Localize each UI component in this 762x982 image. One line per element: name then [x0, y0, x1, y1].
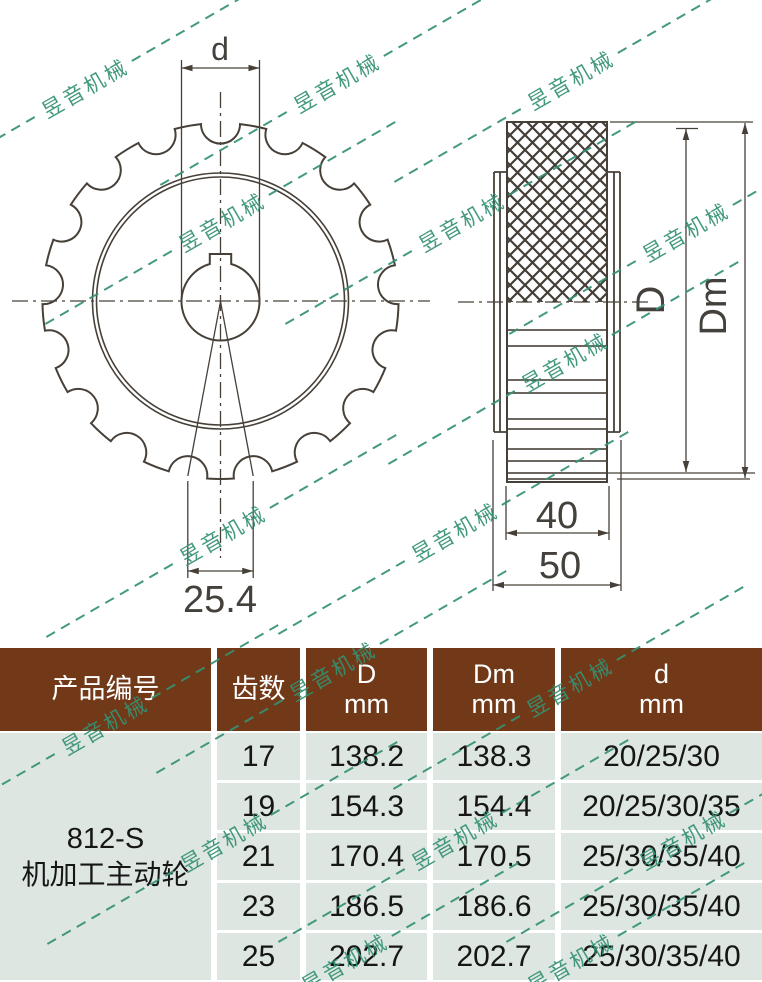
header-bore-mm: dmm [561, 648, 762, 731]
table-cell: 25/30/35/40 [561, 833, 762, 880]
table-cell: 138.2 [306, 733, 427, 780]
table-cell: 19 [217, 783, 300, 830]
drawing-canvas: d 25.4 [0, 0, 762, 648]
header-Dm-mm: Dmmm [433, 648, 555, 731]
table-body: 812-S 机加工主动轮 17 138.2 138.3 20/25/30 19 … [0, 733, 762, 980]
header-D-mm: Dmm [306, 648, 427, 731]
product-name: 机加工主动轮 [21, 857, 189, 892]
table-cell: 154.4 [433, 783, 555, 830]
table-cell: 186.6 [433, 883, 555, 930]
table-cell: 23 [217, 883, 300, 930]
table-cell: 21 [217, 833, 300, 880]
technical-drawing: d 25.4 [0, 0, 762, 648]
table-cell: 20/25/30/35 [561, 783, 762, 830]
dim-label-50: 50 [539, 545, 581, 587]
table-cell: 138.3 [433, 733, 555, 780]
header-teeth: 齿数 [217, 648, 300, 731]
page: d 25.4 [0, 0, 762, 982]
dim-label-25-4: 25.4 [183, 579, 257, 621]
table-header-row: 产品编号 齿数 Dmm Dmmm dmm [0, 648, 762, 731]
knurl-area [507, 122, 607, 302]
table-cell: 170.5 [433, 833, 555, 880]
dim-label-Dm: Dm [693, 276, 735, 335]
table-cell: 154.3 [306, 783, 427, 830]
table-cell: 170.4 [306, 833, 427, 880]
dim-label-40: 40 [536, 495, 578, 537]
table-cell: 25/30/35/40 [561, 883, 762, 930]
spec-table: 产品编号 齿数 Dmm Dmmm dmm 812-S 机加工主动轮 17 138… [0, 648, 762, 980]
sprocket-front-view [12, 60, 430, 578]
table-cell: 186.5 [306, 883, 427, 930]
header-product-no: 产品编号 [0, 648, 211, 731]
dim-label-d: d [211, 31, 229, 67]
table-cell: 25 [217, 933, 300, 980]
tooth-grooves [507, 330, 607, 479]
table-cell: 20/25/30 [561, 733, 762, 780]
table-cell: 25/30/35/40 [561, 933, 762, 980]
dim-outer-diameter-Dm [742, 123, 749, 478]
dim-label-D: D [629, 286, 673, 315]
dim-pitch-diameter-D [683, 129, 690, 472]
table-cell: 202.7 [306, 933, 427, 980]
table-cell: 17 [217, 733, 300, 780]
table-cell: 202.7 [433, 933, 555, 980]
sprocket-side-view [458, 122, 755, 591]
product-code: 812-S [67, 821, 144, 857]
product-cell: 812-S 机加工主动轮 [0, 733, 211, 980]
